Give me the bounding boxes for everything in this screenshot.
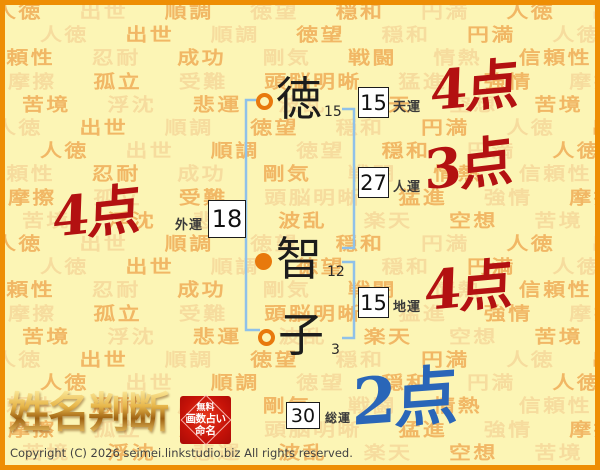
- ring-marker-icon: [258, 329, 275, 346]
- dot-marker-icon: [255, 253, 272, 270]
- stroke-count-3: 3: [331, 342, 340, 358]
- ring-marker-icon: [256, 93, 273, 110]
- seal-line-3: 命名: [186, 425, 226, 437]
- free-naming-seal: 無料 画数占い 命名: [180, 396, 231, 444]
- fortune-box-chi: 15: [358, 287, 389, 318]
- seal-line-2: 画数占い: [186, 413, 226, 425]
- seal-line-1: 無料: [186, 403, 226, 413]
- score-chi: 4点: [423, 256, 512, 318]
- score-sou: 2点: [352, 364, 457, 436]
- seal-text: 無料 画数占い 命名: [186, 403, 226, 437]
- seimei-result-page: 人徳出世順調徳望穏和円満人徳出世順調人徳出世順調徳望穏和円満人徳出世順調信頼性忍…: [0, 0, 600, 470]
- fortune-label-chi: 地運: [393, 296, 421, 315]
- fortune-label-ten: 天運: [393, 96, 421, 115]
- fortune-box-sou: 30: [286, 402, 320, 429]
- name-char-2: 智: [276, 236, 322, 282]
- name-char-1: 徳: [276, 76, 322, 122]
- fortune-label-gai: 外運: [175, 214, 203, 233]
- score-ten: 4点: [429, 56, 518, 118]
- score-gai: 4点: [51, 181, 140, 245]
- site-logo: 姓名判断: [8, 390, 168, 436]
- fortune-box-gai: 18: [208, 200, 246, 238]
- fortune-label-jin: 人運: [393, 176, 421, 195]
- name-char-3: 子: [278, 312, 324, 358]
- fortune-box-jin: 27: [358, 167, 389, 198]
- fortune-box-ten: 15: [358, 87, 389, 118]
- stroke-count-1: 15: [324, 104, 342, 120]
- score-jin: 3点: [424, 133, 512, 198]
- copyright-text: Copyright (C) 2026 seimei.linkstudio.biz…: [10, 446, 353, 460]
- person-bracket: [342, 109, 354, 248]
- fortune-label-sou: 総運: [325, 409, 351, 426]
- outer-bracket: [246, 100, 260, 330]
- stroke-count-2: 12: [327, 264, 345, 280]
